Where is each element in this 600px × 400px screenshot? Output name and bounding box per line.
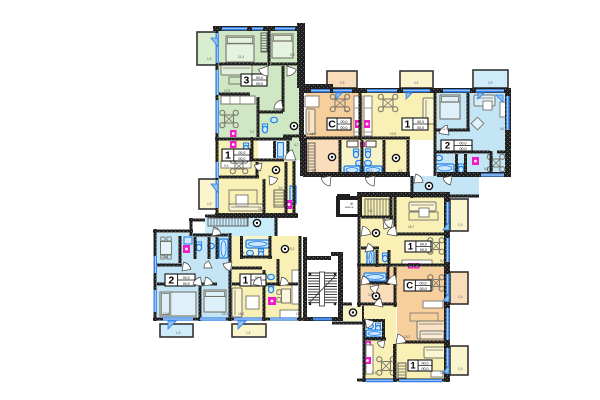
svg-text:9,9: 9,9	[484, 167, 489, 171]
svg-text:2: 2	[168, 275, 174, 287]
svg-text:16,7: 16,7	[408, 225, 414, 229]
svg-text:17,9: 17,9	[224, 89, 230, 93]
svg-text:00,0: 00,0	[420, 282, 427, 286]
svg-text:4,7: 4,7	[294, 143, 299, 147]
svg-text:00,0: 00,0	[256, 76, 263, 80]
svg-text:C: C	[328, 119, 336, 131]
svg-text:00,0: 00,0	[417, 126, 424, 130]
svg-text:4,5: 4,5	[368, 209, 373, 213]
svg-text:00,0: 00,0	[417, 120, 424, 124]
svg-text:2,1: 2,1	[366, 255, 371, 259]
svg-text:16,8: 16,8	[310, 132, 316, 136]
svg-text:16,2: 16,2	[238, 312, 244, 316]
svg-text:1,9: 1,9	[458, 223, 463, 227]
svg-text:00,0: 00,0	[422, 362, 429, 366]
svg-text:2,9: 2,9	[488, 81, 493, 85]
svg-text:00,0: 00,0	[238, 151, 245, 155]
svg-text:00,0: 00,0	[183, 276, 190, 280]
svg-text:9,6: 9,6	[224, 164, 229, 168]
svg-text:9,6: 9,6	[214, 227, 219, 231]
svg-text:00,0: 00,0	[420, 248, 427, 252]
svg-text:00,0: 00,0	[341, 126, 348, 130]
svg-text:00,0: 00,0	[420, 287, 427, 291]
svg-text:6,6: 6,6	[440, 191, 445, 195]
svg-text:10,4: 10,4	[162, 255, 168, 259]
svg-text:16,4: 16,4	[258, 207, 264, 211]
svg-text:5,7: 5,7	[312, 169, 317, 173]
svg-text:00,0: 00,0	[420, 243, 427, 247]
svg-text:3,5: 3,5	[240, 251, 245, 255]
svg-text:4,2: 4,2	[398, 169, 403, 173]
svg-text:3,3: 3,3	[368, 169, 373, 173]
svg-text:9,5: 9,5	[440, 259, 445, 263]
svg-text:1: 1	[408, 242, 414, 253]
svg-text:1: 1	[243, 275, 249, 287]
svg-text:C: C	[406, 281, 413, 292]
svg-text:n,n: n,n	[344, 109, 349, 113]
svg-text:00,0: 00,0	[460, 147, 467, 151]
svg-text:5,2: 5,2	[290, 247, 295, 251]
svg-text:00,0: 00,0	[256, 82, 263, 86]
svg-text:00,0: 00,0	[460, 142, 467, 146]
svg-text:2,9: 2,9	[340, 81, 345, 85]
svg-text:1,9: 1,9	[176, 331, 181, 335]
svg-text:1,9: 1,9	[246, 331, 251, 335]
svg-text:1,9: 1,9	[207, 202, 212, 206]
svg-text:00,0: 00,0	[422, 367, 429, 371]
svg-text:9,8: 9,8	[290, 53, 295, 57]
svg-text:2,9: 2,9	[414, 81, 419, 85]
svg-text:00,0: 00,0	[183, 282, 190, 286]
svg-text:00,0: 00,0	[341, 120, 348, 124]
svg-text:11,4: 11,4	[238, 55, 244, 59]
svg-text:1,9: 1,9	[458, 367, 463, 371]
svg-text:3,6: 3,6	[278, 186, 283, 190]
svg-text:1: 1	[410, 361, 416, 372]
svg-text:16,7: 16,7	[500, 127, 506, 131]
svg-text:3,8: 3,8	[368, 293, 373, 297]
svg-text:15,4: 15,4	[440, 371, 446, 375]
svg-text:10,9: 10,9	[390, 132, 396, 136]
svg-text:15,2: 15,2	[404, 335, 410, 339]
svg-text:2: 2	[445, 141, 450, 152]
svg-text:9,1: 9,1	[372, 371, 377, 375]
svg-text:13,9: 13,9	[163, 312, 169, 316]
svg-text:3: 3	[244, 75, 250, 87]
svg-text:11,5: 11,5	[442, 127, 448, 131]
svg-text:lift: lift	[350, 202, 353, 206]
svg-text:1: 1	[405, 119, 411, 131]
svg-text:10,7: 10,7	[296, 312, 302, 316]
svg-text:9,7: 9,7	[250, 130, 255, 134]
svg-text:11,4: 11,4	[222, 312, 228, 316]
svg-text:00,0: 00,0	[238, 157, 245, 161]
svg-text:1: 1	[225, 150, 231, 162]
svg-text:1,9: 1,9	[458, 295, 463, 299]
svg-text:1,9: 1,9	[207, 57, 212, 61]
